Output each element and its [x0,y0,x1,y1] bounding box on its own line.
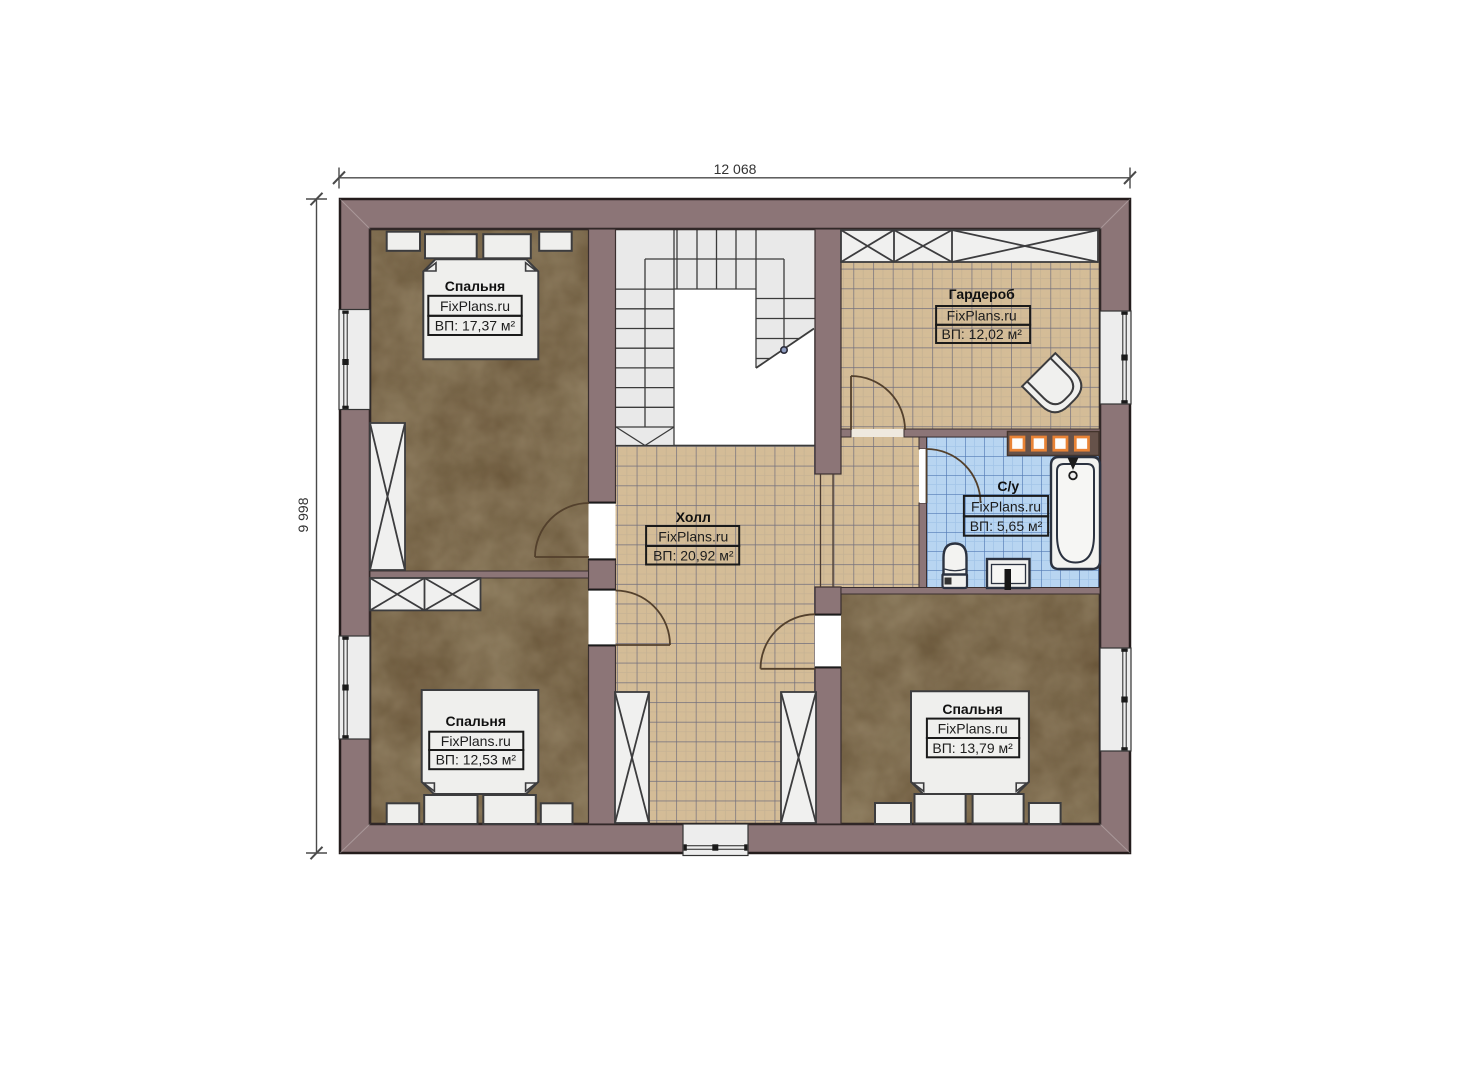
svg-text:ВП: 5,65 м²: ВП: 5,65 м² [970,518,1043,534]
svg-text:FixPlans.ru: FixPlans.ru [441,733,511,749]
svg-text:Спальня: Спальня [942,701,1002,717]
svg-text:ВП: 12,53 м²: ВП: 12,53 м² [436,752,517,768]
svg-text:ВП: 13,79 м²: ВП: 13,79 м² [932,740,1013,756]
svg-text:ВП: 17,37 м²: ВП: 17,37 м² [435,318,516,334]
svg-text:FixPlans.ru: FixPlans.ru [971,499,1041,515]
svg-text:FixPlans.ru: FixPlans.ru [938,721,1008,737]
svg-text:ВП: 20,92 м²: ВП: 20,92 м² [653,548,734,564]
svg-text:С/у: С/у [997,478,1019,494]
svg-text:Спальня: Спальня [445,278,505,294]
svg-text:FixPlans.ru: FixPlans.ru [658,529,728,545]
svg-text:12 068: 12 068 [714,161,757,177]
svg-text:FixPlans.ru: FixPlans.ru [947,308,1017,324]
svg-text:Холл: Холл [676,509,711,525]
svg-text:ВП: 12,02 м²: ВП: 12,02 м² [942,326,1023,342]
svg-text:Спальня: Спальня [446,713,506,729]
svg-text:Гардероб: Гардероб [949,286,1016,302]
svg-text:FixPlans.ru: FixPlans.ru [440,298,510,314]
svg-text:9 998: 9 998 [295,497,311,532]
